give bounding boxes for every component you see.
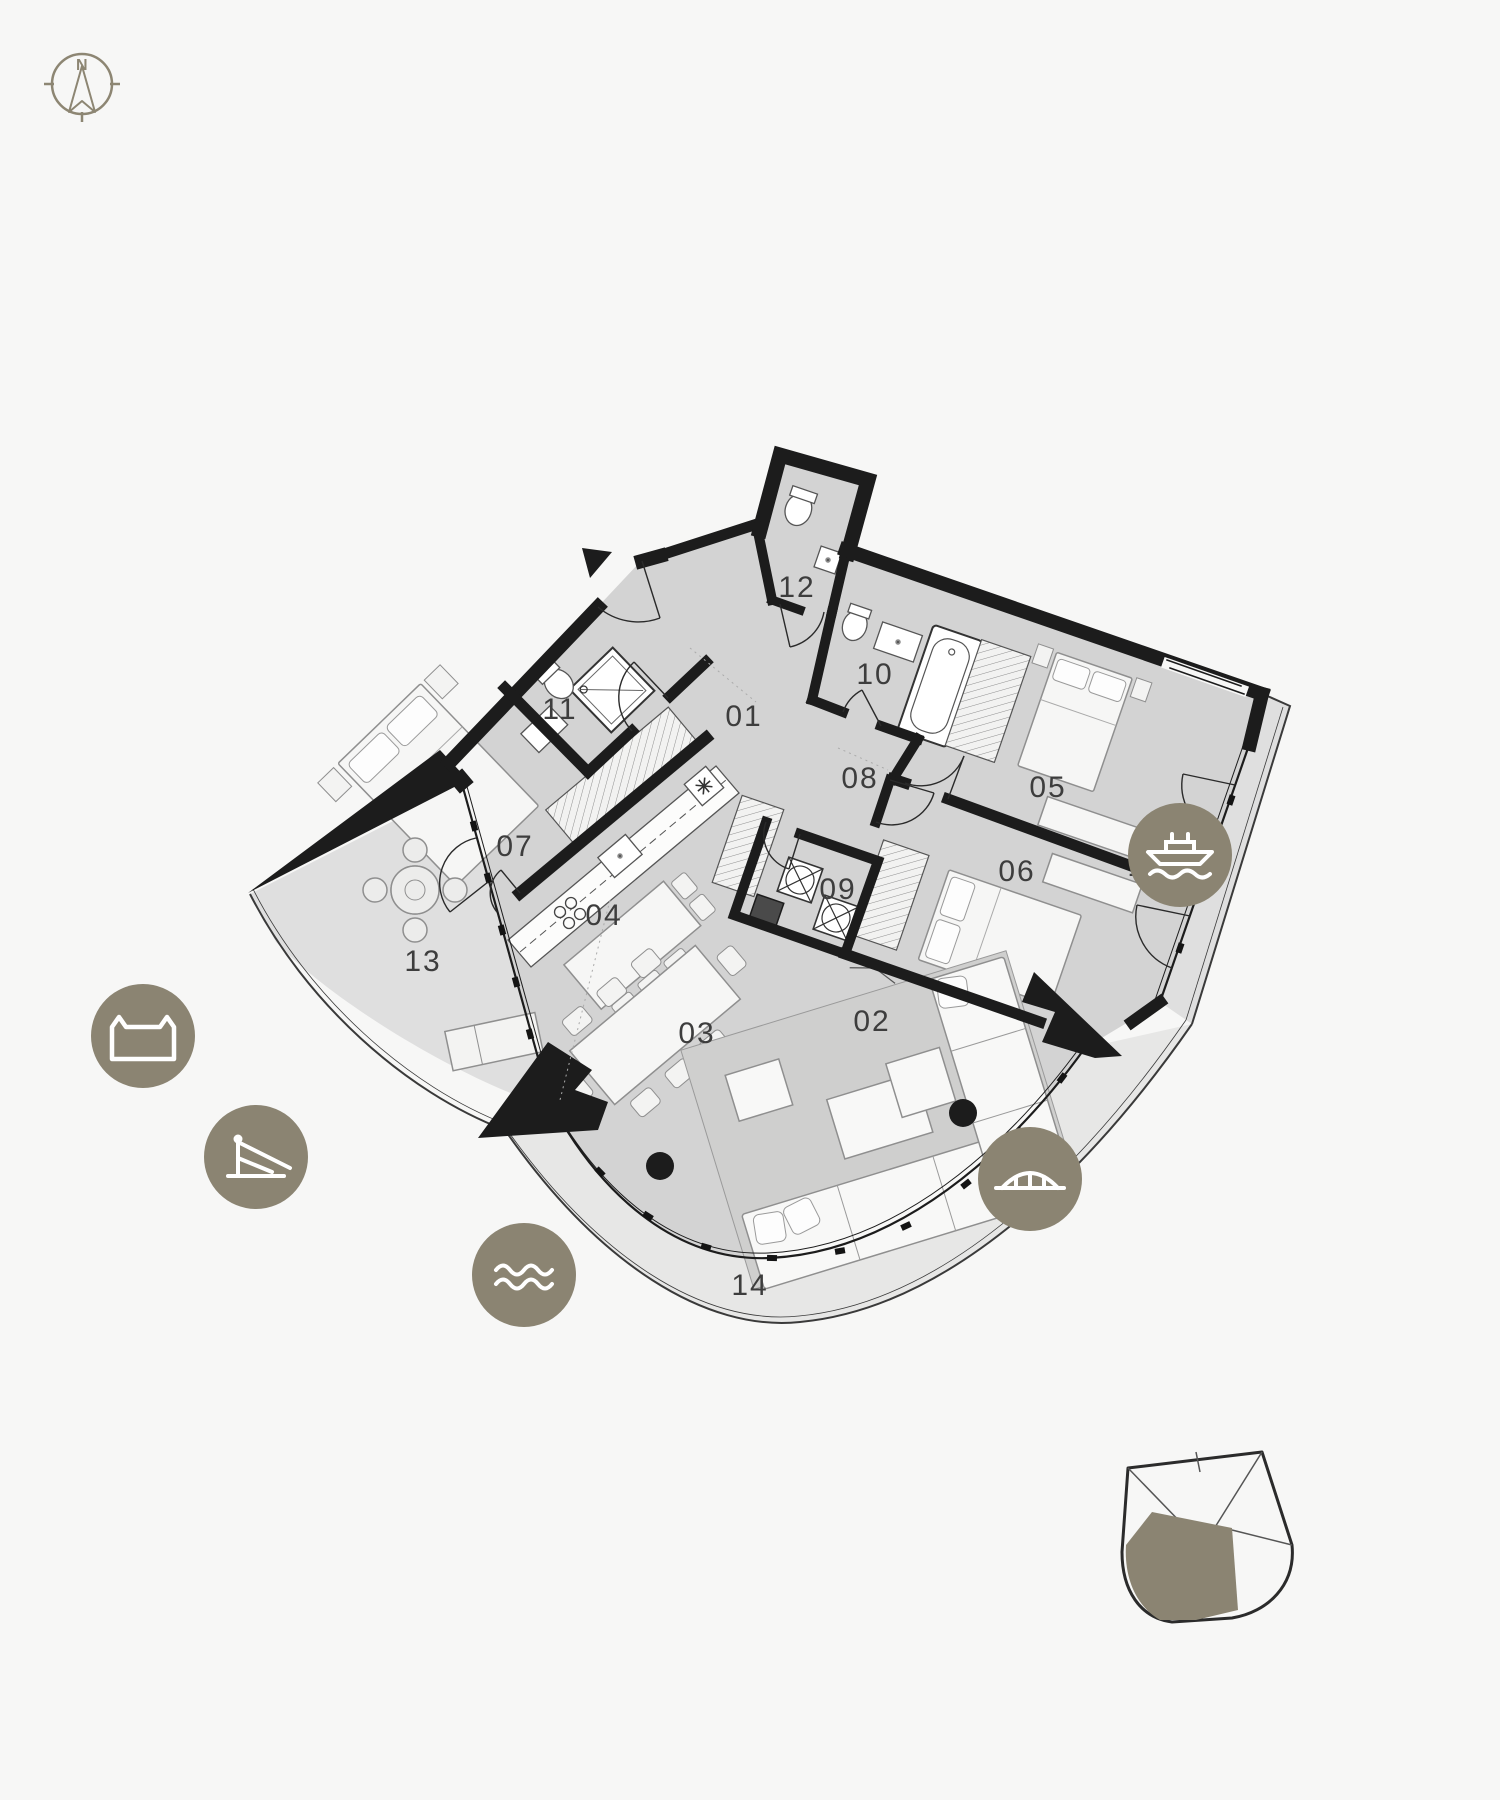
entry-arrow-icon — [582, 548, 612, 578]
key-plan — [1122, 1452, 1292, 1622]
room-label-11: 11 — [542, 693, 577, 726]
room-label-03: 03 — [678, 1017, 715, 1050]
room-label-02: 02 — [853, 1005, 890, 1038]
badge-crane — [204, 1105, 308, 1209]
badge-waves — [472, 1223, 576, 1327]
room-label-06: 06 — [998, 855, 1035, 888]
room-label-05: 05 — [1029, 771, 1066, 804]
room-label-10: 10 — [856, 658, 893, 691]
room-label-08: 08 — [841, 762, 878, 795]
badge-bridge — [978, 1127, 1082, 1231]
unit-highlight — [1126, 1512, 1238, 1620]
structural-column-2 — [949, 1099, 977, 1127]
badge-ferry — [1128, 803, 1232, 907]
room-label-07: 07 — [496, 830, 533, 863]
compass-north-label: N — [76, 57, 88, 74]
room-label-12: 12 — [778, 571, 815, 604]
room-label-01: 01 — [725, 700, 762, 733]
room-label-04: 04 — [585, 899, 622, 932]
room-label-14: 14 — [731, 1269, 768, 1302]
structural-column — [646, 1152, 674, 1180]
room-label-13: 13 — [404, 945, 441, 978]
badge-castle — [91, 984, 195, 1088]
room-label-09: 09 — [819, 873, 856, 906]
floor-plan-canvas: N — [0, 0, 1500, 1800]
